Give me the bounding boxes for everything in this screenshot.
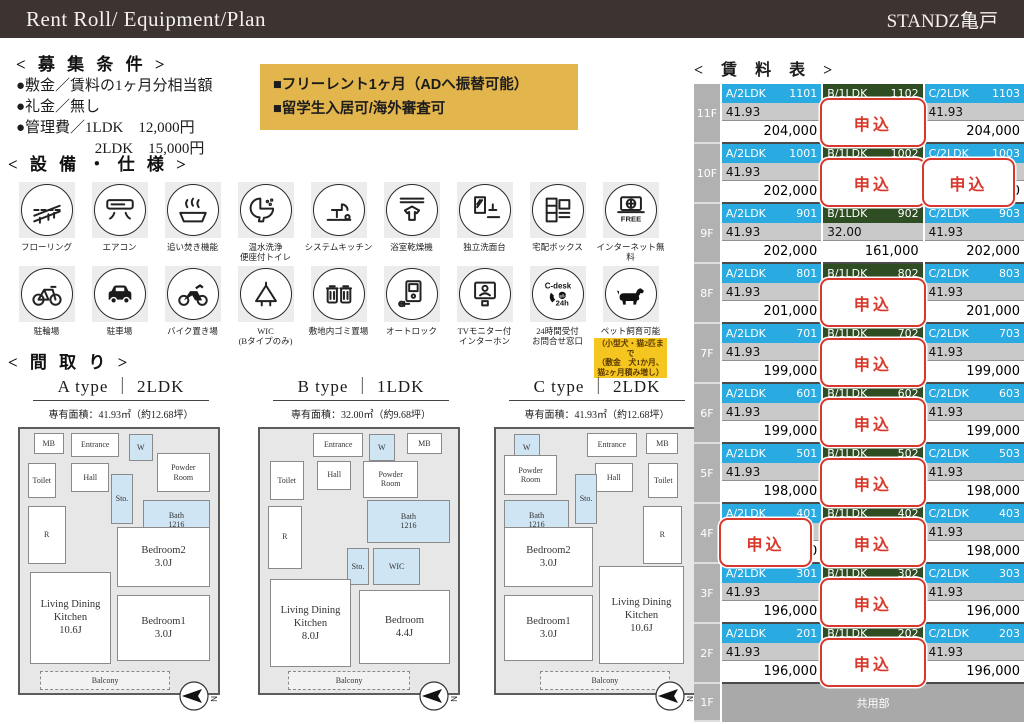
room-toilet: Toilet xyxy=(28,463,56,497)
unit-type: C/2LDK xyxy=(929,567,969,580)
condition-item: ●敷金／賃料の1ヶ月分相当額 xyxy=(16,76,213,97)
icon-tile xyxy=(384,266,440,322)
unit-room-number: 301 xyxy=(796,567,817,580)
icon-tile xyxy=(165,182,221,238)
unit-price: 199,000 xyxy=(722,361,821,384)
unit-cell: C/2LDK40341.93198,000 xyxy=(925,504,1024,564)
flooring-icon xyxy=(21,184,73,236)
plan-area-text: 専有面積：32.00㎡（約9.68坪） xyxy=(254,406,468,421)
room-sto-: Sto. xyxy=(575,474,597,524)
unit-type: A/2LDK xyxy=(726,387,766,400)
unit-room-number: 603 xyxy=(999,387,1020,400)
plan-type-title: C type ｜ 2LDK xyxy=(509,372,685,401)
room-bedroom1: Bedroom1 3.0J xyxy=(117,595,210,661)
equipment-label: オートロック xyxy=(386,326,437,336)
icon-tile: C-deskHello!24h xyxy=(530,266,586,322)
room-bath: Bath 1216 xyxy=(367,500,450,542)
garbage-icon xyxy=(313,268,365,320)
floor-row: 11FA/2LDK110141.93204,000B/1LDK1102申込C/2… xyxy=(694,84,1024,144)
icon-tile xyxy=(238,266,294,322)
compass-icon: N xyxy=(648,678,700,719)
svg-text:N: N xyxy=(685,696,694,702)
page-title: Rent Roll/ Equipment/Plan xyxy=(26,7,266,32)
unit-cell: B/1LDK402申込 xyxy=(823,504,922,564)
equipment-label: インターネット無料 xyxy=(594,242,667,262)
equipment-row-1: フローリングエアコン追い焚き機能温水洗浄 便座付トイレシステムキッチン浴室乾燥機… xyxy=(10,182,667,262)
unit-header: C/2LDK303 xyxy=(925,564,1024,583)
room-bedroom2: Bedroom2 3.0J xyxy=(117,527,210,588)
unit-cell: C/2LDK80341.93201,000 xyxy=(925,264,1024,324)
unit-cell: A/2LDK80141.93201,000 xyxy=(722,264,821,324)
autolock-icon xyxy=(386,268,438,320)
svg-text:N: N xyxy=(209,696,218,702)
equipment-label: 駐輪場 xyxy=(34,326,60,336)
unit-price: 198,000 xyxy=(925,541,1024,564)
page: Rent Roll/ Equipment/Plan STANDZ亀戸 < 募 集… xyxy=(0,0,1024,724)
unit-price: 201,000 xyxy=(722,301,821,324)
unit-size: 41.93 xyxy=(722,283,821,301)
plan-area-text: 専有面積：41.93㎡（約12.68坪） xyxy=(14,406,228,421)
room-r: R xyxy=(268,506,302,569)
unit-room-number: 201 xyxy=(796,627,817,640)
applied-badge: 申込 xyxy=(820,458,925,507)
unit-cell: A/2LDK60141.93199,000 xyxy=(722,384,821,444)
rent-table-title: < 賃 料 表 > xyxy=(694,56,839,80)
floorplan: B type ｜ 1LDK専有面積：32.00㎡（約9.68坪）Entrance… xyxy=(254,372,468,695)
unit-cell: C/2LDK60341.93199,000 xyxy=(925,384,1024,444)
ground-floor-row: 1F共用部 xyxy=(694,684,1024,722)
unit-price: 204,000 xyxy=(925,121,1024,144)
kitchen-item: システムキッチン xyxy=(302,182,375,262)
washbasin-icon xyxy=(459,184,511,236)
tvintercom-item: TVモニター付 インターホン xyxy=(448,266,521,378)
room-living-dining: Living Dining Kitchen 8.0J xyxy=(270,579,351,666)
unit-price: 161,000 xyxy=(823,241,922,264)
bicycle-icon xyxy=(21,268,73,320)
equipment-label: エアコン xyxy=(102,242,136,252)
equipment-label: 温水洗浄 便座付トイレ xyxy=(240,242,291,262)
unit-size: 41.93 xyxy=(925,523,1024,541)
unit-size: 41.93 xyxy=(925,103,1024,121)
equipment-label: ペット飼育可能 xyxy=(601,326,661,336)
floor-label: 7F xyxy=(694,324,720,384)
icon-tile xyxy=(19,182,75,238)
unit-header: A/2LDK801 xyxy=(722,264,821,283)
unit-cell: A/2LDK20141.93196,000 xyxy=(722,624,821,684)
room-toilet: Toilet xyxy=(270,461,304,501)
room-mb: MB xyxy=(34,433,64,454)
applied-badge: 申込 xyxy=(820,398,925,447)
room-entrance: Entrance xyxy=(71,433,119,457)
room-living-dining: Living Dining Kitchen 10.6J xyxy=(599,566,684,664)
unit-cell: B/1LDK202申込 xyxy=(823,624,922,684)
equipment-label: フローリング xyxy=(21,242,72,252)
applied-badge: 申込 xyxy=(820,518,925,567)
floor-row: 3FA/2LDK30141.93196,000B/1LDK302申込C/2LDK… xyxy=(694,564,1024,624)
unit-cell: A/2LDK90141.93202,000 xyxy=(722,204,821,264)
condition-item: ●管理費／1LDK 12,000円 xyxy=(16,118,213,139)
tvintercom-icon xyxy=(459,268,511,320)
unit-size: 41.93 xyxy=(722,343,821,361)
unit-price: 198,000 xyxy=(925,481,1024,504)
compass-icon: N xyxy=(412,678,464,719)
unit-type: C/2LDK xyxy=(929,267,969,280)
floor-label: 9F xyxy=(694,204,720,264)
aircon-icon xyxy=(94,184,146,236)
unit-room-number: 1101 xyxy=(789,87,817,100)
unit-room-number: 1001 xyxy=(789,147,817,160)
unit-header: A/2LDK901 xyxy=(722,204,821,223)
unit-cell: B/1LDK302申込 xyxy=(823,564,922,624)
floor-label: 3F xyxy=(694,564,720,624)
unit-price: 202,000 xyxy=(925,241,1024,264)
room-w: W xyxy=(129,434,153,460)
unit-size: 41.93 xyxy=(722,163,821,181)
icon-tile xyxy=(311,266,367,322)
unit-room-number: 503 xyxy=(999,447,1020,460)
motorcycle-item: バイク置き場 xyxy=(156,266,229,378)
unit-cell: C/2LDK50341.93198,000 xyxy=(925,444,1024,504)
notice-line: ■留学生入居可/海外審査可 xyxy=(273,97,565,121)
floor-row: 10FA/2LDK100141.93202,000B/1LDK1002申込C/2… xyxy=(694,144,1024,204)
bathdryer-icon xyxy=(386,184,438,236)
equipment-label: 敷地内ゴミ置場 xyxy=(309,326,369,336)
unit-cell: B/1LDK502申込 xyxy=(823,444,922,504)
unit-size: 41.93 xyxy=(925,643,1024,661)
unit-size: 41.93 xyxy=(925,583,1024,601)
unit-cell: B/1LDK90232.00161,000 xyxy=(823,204,922,264)
unit-header: A/2LDK201 xyxy=(722,624,821,643)
unit-size: 41.93 xyxy=(925,343,1024,361)
unit-size: 41.93 xyxy=(722,583,821,601)
floorplan-title: < 間 取 り > xyxy=(8,348,131,373)
unit-cell: A/2LDK40141.93198,000申込 xyxy=(722,504,821,564)
equipment-label: 独立洗面台 xyxy=(463,242,506,252)
unit-cell: C/2LDK110341.93204,000 xyxy=(925,84,1024,144)
applied-badge: 申込 xyxy=(922,158,1015,207)
unit-price: 202,000 xyxy=(722,241,821,264)
unit-type: C/2LDK xyxy=(929,87,969,100)
unit-type: C/2LDK xyxy=(929,627,969,640)
unit-cell: C/2LDK90341.93202,000 xyxy=(925,204,1024,264)
floor-row: 7FA/2LDK70141.93199,000B/1LDK702申込C/2LDK… xyxy=(694,324,1024,384)
unit-cell: C/2LDK100341.93202,000申込 xyxy=(925,144,1024,204)
unit-header: A/2LDK1001 xyxy=(722,144,821,163)
room-mb: MB xyxy=(407,433,443,454)
unit-room-number: 903 xyxy=(999,207,1020,220)
floor-label: 11F xyxy=(694,84,720,144)
unit-cell: C/2LDK30341.93196,000 xyxy=(925,564,1024,624)
floor-row: 2FA/2LDK20141.93196,000B/1LDK202申込C/2LDK… xyxy=(694,624,1024,684)
cdesk-item: C-deskHello!24h24時間受付 お問合せ窓口 xyxy=(521,266,594,378)
room-r: R xyxy=(28,506,66,564)
icon-tile xyxy=(457,266,513,322)
unit-price: 199,000 xyxy=(925,361,1024,384)
room-entrance: Entrance xyxy=(313,433,363,457)
unit-cell: A/2LDK30141.93196,000 xyxy=(722,564,821,624)
unit-header: C/2LDK803 xyxy=(925,264,1024,283)
floor-row: 6FA/2LDK60141.93199,000B/1LDK602申込C/2LDK… xyxy=(694,384,1024,444)
building-name: STANDZ亀戸 xyxy=(887,6,998,33)
unit-type: C/2LDK xyxy=(929,447,969,460)
deliverybox-icon xyxy=(532,184,584,236)
equipment-label: 追い焚き機能 xyxy=(167,242,218,252)
conditions-list: ●敷金／賃料の1ヶ月分相当額 ●礼金／無し ●管理費／1LDK 12,000円 … xyxy=(16,76,213,160)
unit-room-number: 701 xyxy=(796,327,817,340)
conditions-title: < 募 集 条 件 > xyxy=(16,50,169,75)
washlet-icon xyxy=(240,184,292,236)
room-w: W xyxy=(369,434,395,460)
room-entrance: Entrance xyxy=(587,433,637,457)
equipment-title: < 設 備 ・ 仕 様 > xyxy=(8,150,190,175)
icon-tile xyxy=(92,266,148,322)
icon-tile xyxy=(530,182,586,238)
unit-type: C/2LDK xyxy=(929,507,969,520)
svg-text:FREE: FREE xyxy=(620,214,640,223)
plan-drawing: MBEntranceWPowder RoomToiletHallSto.Bath… xyxy=(18,427,220,695)
room-hall: Hall xyxy=(317,461,351,490)
unit-cell: B/1LDK602申込 xyxy=(823,384,922,444)
floor-label: 6F xyxy=(694,384,720,444)
floor-label: 4F xyxy=(694,504,720,564)
unit-type: A/2LDK xyxy=(726,327,766,340)
unit-room-number: 601 xyxy=(796,387,817,400)
icon-tile xyxy=(238,182,294,238)
unit-header: C/2LDK603 xyxy=(925,384,1024,403)
washlet-item: 温水洗浄 便座付トイレ xyxy=(229,182,302,262)
unit-room-number: 303 xyxy=(999,567,1020,580)
kitchen-icon xyxy=(313,184,365,236)
applied-badge: 申込 xyxy=(820,98,925,147)
aircon-item: エアコン xyxy=(83,182,156,262)
room-powder: Powder Room xyxy=(504,455,557,495)
flooring-item: フローリング xyxy=(10,182,83,262)
applied-badge: 申込 xyxy=(820,158,925,207)
icon-tile xyxy=(165,266,221,322)
compass-icon: N xyxy=(172,678,224,719)
unit-type: A/2LDK xyxy=(726,267,766,280)
unit-size: 41.93 xyxy=(722,103,821,121)
unit-type: C/2LDK xyxy=(929,207,969,220)
unit-room-number: 803 xyxy=(999,267,1020,280)
room-hall: Hall xyxy=(595,463,633,492)
unit-size: 41.93 xyxy=(925,283,1024,301)
plan-type-title: A type ｜ 2LDK xyxy=(33,372,209,401)
room-mb: MB xyxy=(646,433,678,454)
icon-tile xyxy=(384,182,440,238)
notice-line: ■フリーレント1ヶ月（ADへ振替可能） xyxy=(273,73,565,97)
unit-price: 196,000 xyxy=(925,661,1024,684)
unit-price: 196,000 xyxy=(722,601,821,624)
motorcycle-icon xyxy=(167,268,219,320)
unit-cell: A/2LDK70141.93199,000 xyxy=(722,324,821,384)
icon-tile: FREE xyxy=(603,182,659,238)
room-sto-: Sto. xyxy=(111,474,133,524)
unit-price: 196,000 xyxy=(722,661,821,684)
svg-text:N: N xyxy=(449,696,458,702)
icon-tile xyxy=(92,182,148,238)
deliverybox-item: 宅配ボックス xyxy=(521,182,594,262)
garbage-item: 敷地内ゴミ置場 xyxy=(302,266,375,378)
room-bedroom1: Bedroom1 3.0J xyxy=(504,595,593,661)
unit-room-number: 203 xyxy=(999,627,1020,640)
pet-icon xyxy=(605,268,657,320)
unit-price: 198,000 xyxy=(722,481,821,504)
unit-type: A/2LDK xyxy=(726,567,766,580)
unit-size: 32.00 xyxy=(823,223,922,241)
unit-size: 41.93 xyxy=(722,463,821,481)
reheat-item: 追い焚き機能 xyxy=(156,182,229,262)
unit-price: 201,000 xyxy=(925,301,1024,324)
icon-tile xyxy=(19,266,75,322)
unit-room-number: 801 xyxy=(796,267,817,280)
floor-label: 2F xyxy=(694,624,720,684)
unit-cell: B/1LDK702申込 xyxy=(823,324,922,384)
unit-header: C/2LDK403 xyxy=(925,504,1024,523)
unit-header: C/2LDK703 xyxy=(925,324,1024,343)
unit-cell: A/2LDK50141.93198,000 xyxy=(722,444,821,504)
wic-icon xyxy=(240,268,292,320)
applied-badge: 申込 xyxy=(719,518,812,567)
unit-type: B/1LDK xyxy=(827,207,867,220)
floor-row: 4FA/2LDK40141.93198,000申込B/1LDK402申込C/2L… xyxy=(694,504,1024,564)
unit-price: 199,000 xyxy=(722,421,821,444)
unit-header: A/2LDK501 xyxy=(722,444,821,463)
unit-type: A/2LDK xyxy=(726,627,766,640)
header-bar: Rent Roll/ Equipment/Plan STANDZ亀戸 xyxy=(0,0,1024,38)
internet-icon: FREE xyxy=(605,184,657,236)
unit-type: A/2LDK xyxy=(726,147,766,160)
icon-tile xyxy=(311,182,367,238)
icon-tile xyxy=(603,266,659,322)
equipment-label: 宅配ボックス xyxy=(532,242,583,252)
equipment-label: 浴室乾燥機 xyxy=(390,242,433,252)
unit-price: 196,000 xyxy=(925,601,1024,624)
unit-cell: C/2LDK20341.93196,000 xyxy=(925,624,1024,684)
unit-header: A/2LDK701 xyxy=(722,324,821,343)
floor-row: 8FA/2LDK80141.93201,000B/1LDK802申込C/2LDK… xyxy=(694,264,1024,324)
unit-header: A/2LDK601 xyxy=(722,384,821,403)
wic-item: WIC (Bタイプのみ) xyxy=(229,266,302,378)
cdesk-icon: C-deskHello!24h xyxy=(532,268,584,320)
floor-label: 1F xyxy=(694,684,720,722)
unit-size: 41.93 xyxy=(722,223,821,241)
floor-label: 8F xyxy=(694,264,720,324)
floor-row: 5FA/2LDK50141.93198,000B/1LDK502申込C/2LDK… xyxy=(694,444,1024,504)
equipment-label: システムキッチン xyxy=(305,242,373,252)
unit-cell: C/2LDK70341.93199,000 xyxy=(925,324,1024,384)
unit-cell: A/2LDK100141.93202,000 xyxy=(722,144,821,204)
applied-badge: 申込 xyxy=(820,278,925,327)
unit-price: 199,000 xyxy=(925,421,1024,444)
room-hall: Hall xyxy=(71,463,109,492)
pet-item: ペット飼育可能（小型犬・猫2匹まで （敷金 犬1か月、 猫2ヶ月積み増し） xyxy=(594,266,667,378)
unit-room-number: 902 xyxy=(898,207,919,220)
unit-room-number: 901 xyxy=(796,207,817,220)
campaign-notice-box: ■フリーレント1ヶ月（ADへ振替可能） ■留学生入居可/海外審査可 xyxy=(260,64,578,130)
rent-table: 11FA/2LDK110141.93204,000B/1LDK1102申込C/2… xyxy=(694,84,1024,722)
internet-item: FREEインターネット無料 xyxy=(594,182,667,262)
icon-tile xyxy=(457,182,513,238)
unit-cell: B/1LDK802申込 xyxy=(823,264,922,324)
unit-cell: A/2LDK110141.93204,000 xyxy=(722,84,821,144)
unit-type: A/2LDK xyxy=(726,87,766,100)
unit-price: 202,000 xyxy=(722,181,821,204)
unit-header: C/2LDK503 xyxy=(925,444,1024,463)
unit-header: A/2LDK1101 xyxy=(722,84,821,103)
common-area-cell: 共用部 xyxy=(722,684,1024,722)
svg-text:24h: 24h xyxy=(555,298,568,307)
autolock-item: オートロック xyxy=(375,266,448,378)
room-balcony: Balcony xyxy=(40,671,171,691)
unit-type: C/2LDK xyxy=(929,387,969,400)
unit-cell: B/1LDK1102申込 xyxy=(823,84,922,144)
applied-badge: 申込 xyxy=(820,578,925,627)
unit-room-number: 1103 xyxy=(992,87,1020,100)
unit-room-number: 501 xyxy=(796,447,817,460)
room-powder: Powder Room xyxy=(157,453,210,493)
reheat-icon xyxy=(167,184,219,236)
room-balcony: Balcony xyxy=(288,671,411,691)
plan-drawing: WPowder RoomEntranceMBHallToiletBath 121… xyxy=(494,427,696,695)
equipment-label: 駐車場 xyxy=(107,326,133,336)
equipment-label: バイク置き場 xyxy=(167,326,218,336)
washbasin-item: 独立洗面台 xyxy=(448,182,521,262)
car-icon xyxy=(94,268,146,320)
room-bedroom: Bedroom 4.4J xyxy=(359,590,450,664)
plan-drawing: EntranceWMBToiletHallPowder RoomBath 121… xyxy=(258,427,460,695)
bathdryer-item: 浴室乾燥機 xyxy=(375,182,448,262)
equipment-label: WIC (Bタイプのみ) xyxy=(239,326,293,346)
unit-header: C/2LDK203 xyxy=(925,624,1024,643)
unit-size: 41.93 xyxy=(925,223,1024,241)
unit-size: 41.93 xyxy=(722,643,821,661)
unit-type: A/2LDK xyxy=(726,207,766,220)
floor-row: 9FA/2LDK90141.93202,000B/1LDK90232.00161… xyxy=(694,204,1024,264)
room-r: R xyxy=(643,506,683,564)
unit-type: C/2LDK xyxy=(929,327,969,340)
unit-cell: B/1LDK1002申込 xyxy=(823,144,922,204)
applied-badge: 申込 xyxy=(820,338,925,387)
unit-header: C/2LDK1103 xyxy=(925,84,1024,103)
floor-label: 10F xyxy=(694,144,720,204)
room-powder: Powder Room xyxy=(363,461,418,498)
plan-type-title: B type ｜ 1LDK xyxy=(273,372,449,401)
room-wic: WIC xyxy=(373,548,421,585)
applied-badge: 申込 xyxy=(820,638,925,687)
unit-type: A/2LDK xyxy=(726,447,766,460)
unit-room-number: 403 xyxy=(999,507,1020,520)
equipment-label: TVモニター付 インターホン xyxy=(458,326,512,346)
unit-room-number: 703 xyxy=(999,327,1020,340)
unit-price: 204,000 xyxy=(722,121,821,144)
unit-size: 41.93 xyxy=(925,463,1024,481)
unit-size: 41.93 xyxy=(925,403,1024,421)
room-toilet: Toilet xyxy=(648,463,678,497)
unit-size: 41.93 xyxy=(722,403,821,421)
room-living-dining: Living Dining Kitchen 10.6J xyxy=(30,572,111,664)
room-bedroom2: Bedroom2 3.0J xyxy=(504,527,593,588)
svg-text:C-desk: C-desk xyxy=(544,281,571,290)
floor-label: 5F xyxy=(694,444,720,504)
plan-area-text: 専有面積：41.93㎡（約12.68坪） xyxy=(490,406,704,421)
floorplan: A type ｜ 2LDK専有面積：41.93㎡（約12.68坪）MBEntra… xyxy=(14,372,228,695)
floorplan: C type ｜ 2LDK専有面積：41.93㎡（約12.68坪）WPowder… xyxy=(490,372,704,695)
condition-item: ●礼金／無し xyxy=(16,97,213,118)
equipment-label: 24時間受付 お問合せ窓口 xyxy=(532,326,583,346)
